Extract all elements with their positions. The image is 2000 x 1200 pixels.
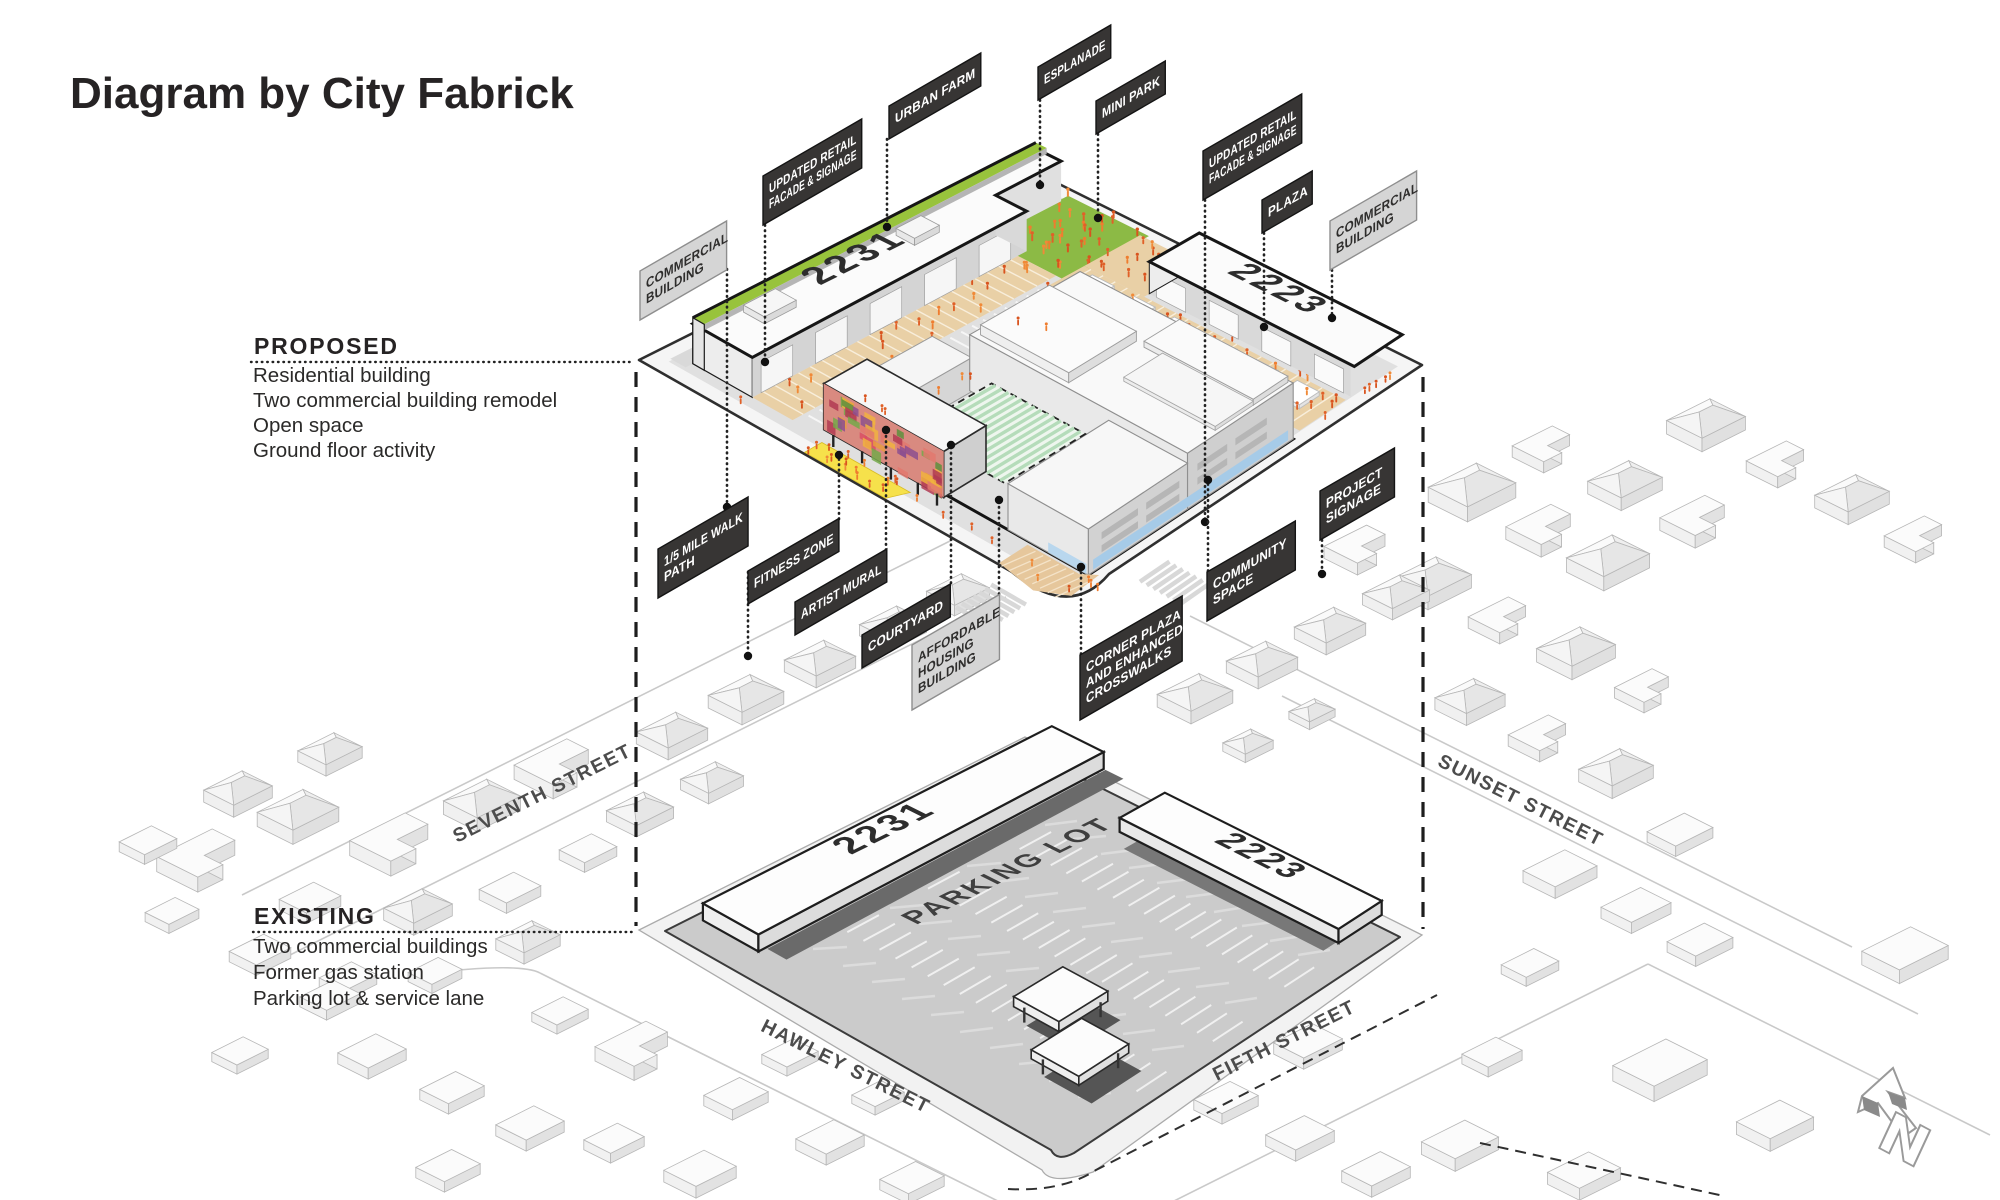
svg-text:Open space: Open space [253, 414, 364, 437]
svg-text:Two commercial buildings: Two commercial buildings [253, 935, 488, 958]
svg-text:PROPOSED: PROPOSED [254, 333, 399, 359]
svg-text:Former gas station: Former gas station [253, 961, 424, 984]
svg-text:EXISTING: EXISTING [254, 903, 376, 929]
svg-text:Diagram by City Fabrick: Diagram by City Fabrick [70, 69, 574, 118]
svg-text:Residential building: Residential building [253, 364, 431, 387]
svg-text:Two commercial building remode: Two commercial building remodel [253, 389, 557, 412]
svg-text:Ground floor activity: Ground floor activity [253, 439, 436, 462]
svg-text:Parking lot & service lane: Parking lot & service lane [253, 987, 484, 1010]
